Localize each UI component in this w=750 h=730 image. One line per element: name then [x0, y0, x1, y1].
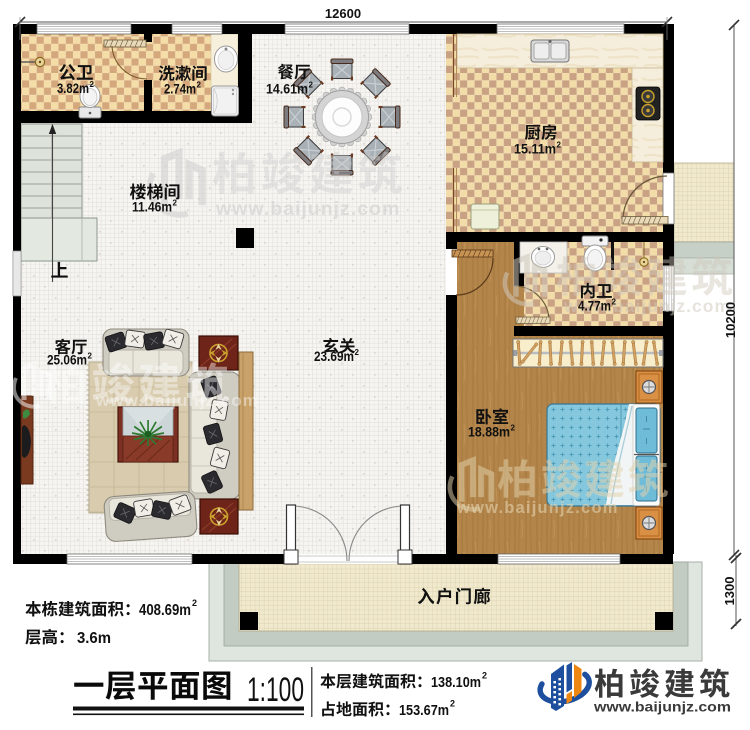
svg-text:23.69m: 23.69m [314, 349, 354, 364]
svg-text:25.06m: 25.06m [47, 353, 87, 368]
svg-text:4.77m: 4.77m [578, 299, 611, 314]
svg-text:12600: 12600 [325, 6, 361, 21]
svg-text:www.baijunjz.com: www.baijunjz.com [215, 198, 400, 220]
svg-text:18.88m: 18.88m [468, 425, 510, 440]
svg-text:2: 2 [482, 671, 487, 681]
svg-text:11.46m: 11.46m [132, 200, 172, 215]
svg-text:2: 2 [450, 699, 455, 709]
svg-text:2: 2 [612, 298, 617, 307]
svg-text:153.67m: 153.67m [399, 702, 449, 719]
svg-text:14.61m: 14.61m [266, 82, 308, 97]
svg-text:2: 2 [173, 199, 178, 208]
svg-text:2: 2 [197, 81, 202, 90]
svg-text:2: 2 [557, 141, 562, 150]
svg-text:3.82m: 3.82m [57, 81, 89, 96]
svg-text:2: 2 [90, 80, 95, 89]
svg-text:1:100: 1:100 [247, 671, 304, 709]
svg-text:www.baijunjz.com: www.baijunjz.com [593, 699, 731, 715]
svg-text:2: 2 [88, 352, 93, 361]
svg-text:15.11m: 15.11m [514, 142, 556, 157]
svg-text:2: 2 [355, 348, 360, 357]
svg-text:1300: 1300 [722, 577, 737, 606]
svg-text:2: 2 [192, 598, 197, 608]
svg-text:10200: 10200 [723, 302, 738, 338]
svg-text:3.6m: 3.6m [77, 630, 111, 647]
svg-text:www.baijunjz.com: www.baijunjz.com [95, 391, 259, 410]
svg-text:2: 2 [511, 424, 516, 433]
svg-text:2: 2 [309, 81, 314, 90]
svg-text:www.baijunjz.com: www.baijunjz.com [456, 499, 619, 517]
svg-text:2.74m: 2.74m [164, 82, 196, 97]
svg-text:138.10m: 138.10m [431, 674, 481, 691]
svg-text:408.69m: 408.69m [139, 602, 191, 619]
